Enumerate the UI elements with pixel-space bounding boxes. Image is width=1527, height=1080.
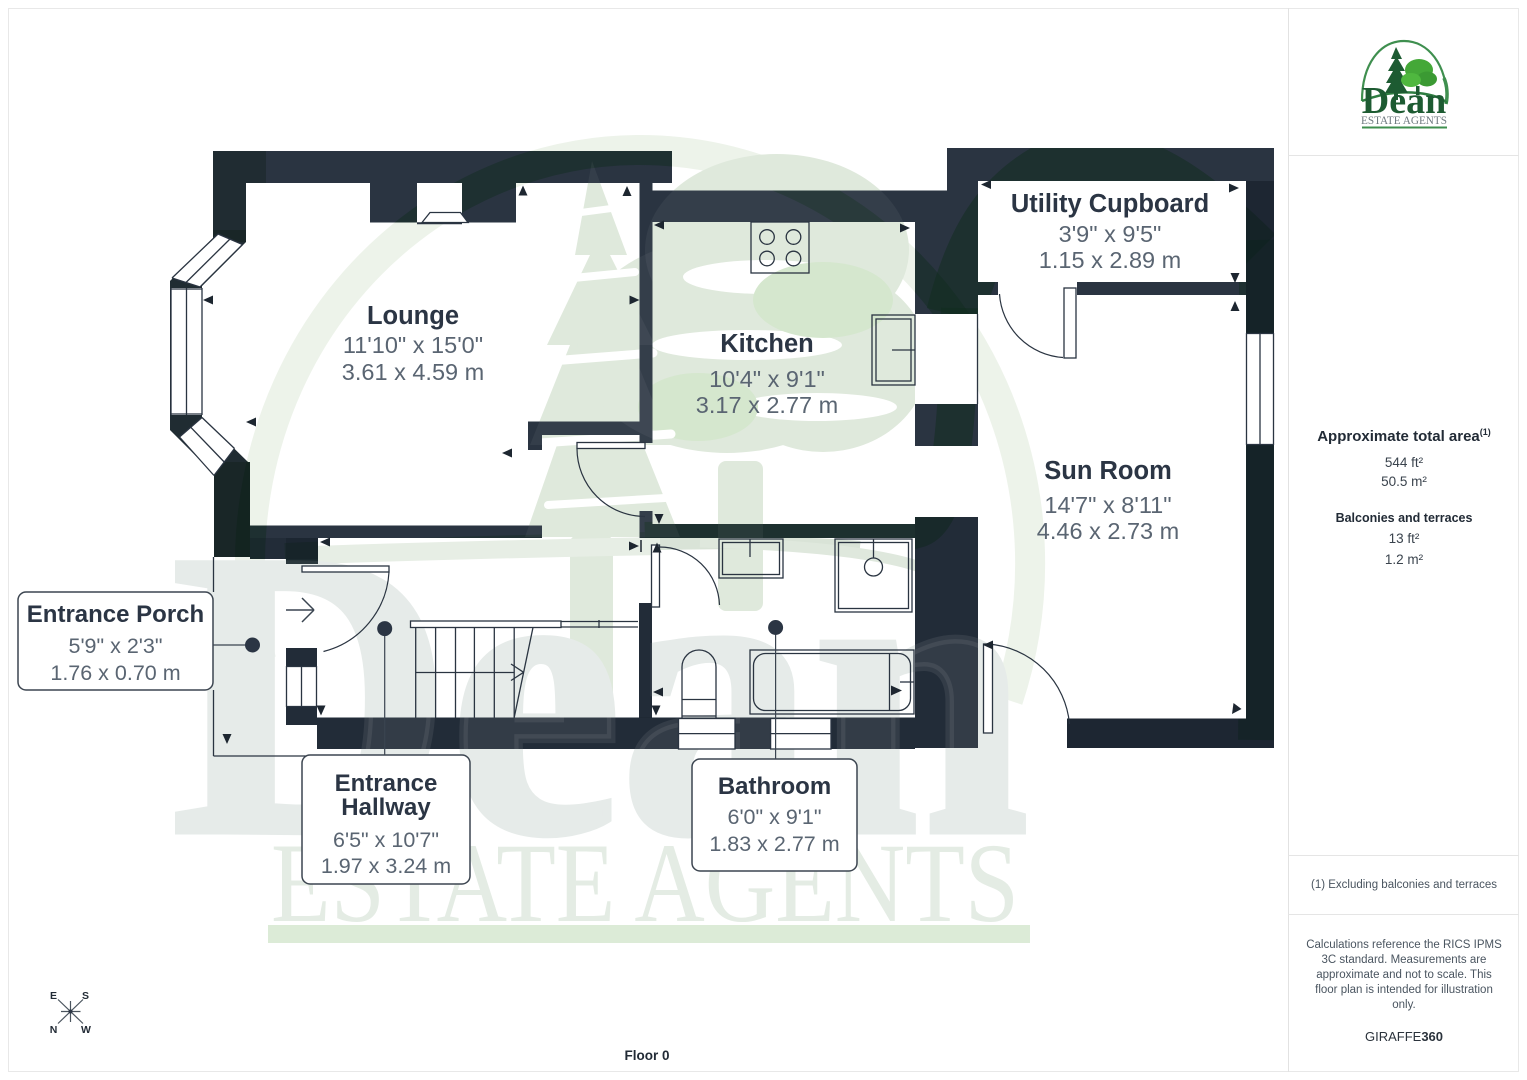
svg-text:3.17 x 2.77 m: 3.17 x 2.77 m [696, 392, 838, 418]
svg-text:GIRAFFE360: GIRAFFE360 [1365, 1029, 1443, 1044]
svg-text:14'7" x 8'11": 14'7" x 8'11" [1044, 492, 1171, 518]
svg-text:S: S [82, 990, 89, 1002]
svg-text:50.5 m²: 50.5 m² [1381, 474, 1427, 489]
svg-text:Entrance Porch: Entrance Porch [27, 601, 204, 628]
svg-text:4.46 x 2.73 m: 4.46 x 2.73 m [1037, 518, 1179, 544]
svg-text:Approximate total area(1): Approximate total area(1) [1317, 427, 1491, 445]
svg-text:6'5" x 10'7": 6'5" x 10'7" [333, 828, 439, 852]
svg-text:E: E [50, 990, 57, 1002]
svg-text:1.2 m²: 1.2 m² [1385, 552, 1424, 567]
svg-text:13 ft²: 13 ft² [1389, 531, 1420, 546]
svg-text:floor plan is intended for ill: floor plan is intended for illustration [1315, 984, 1493, 996]
svg-text:ESTATE AGENTS: ESTATE AGENTS [1361, 115, 1447, 127]
svg-text:approximate and not to scale.: approximate and not to scale. This [1316, 969, 1492, 981]
svg-text:1.97 x 3.24 m: 1.97 x 3.24 m [321, 854, 451, 878]
svg-text:Calculations reference the RIC: Calculations reference the RICS IPMS [1306, 939, 1502, 951]
svg-text:11'10" x 15'0": 11'10" x 15'0" [343, 332, 483, 358]
svg-text:only.: only. [1392, 999, 1415, 1011]
svg-text:1.15 x 2.89 m: 1.15 x 2.89 m [1039, 247, 1181, 273]
svg-text:544 ft²: 544 ft² [1385, 455, 1424, 470]
svg-text:Balconies and terraces: Balconies and terraces [1336, 511, 1473, 525]
svg-text:Bathroom: Bathroom [718, 773, 831, 800]
svg-text:1.76 x 0.70 m: 1.76 x 0.70 m [50, 661, 180, 685]
svg-text:Utility Cupboard: Utility Cupboard [1011, 190, 1209, 218]
svg-text:Sun Room: Sun Room [1044, 457, 1172, 485]
svg-text:1.83 x 2.77 m: 1.83 x 2.77 m [709, 832, 839, 856]
svg-text:Lounge: Lounge [367, 302, 459, 330]
svg-text:3'9" x 9'5": 3'9" x 9'5" [1059, 221, 1162, 247]
svg-text:Floor 0: Floor 0 [624, 1048, 669, 1063]
svg-text:Kitchen: Kitchen [720, 330, 814, 358]
svg-text:10'4" x 9'1": 10'4" x 9'1" [709, 366, 825, 392]
svg-text:3C standard. Measurements are: 3C standard. Measurements are [1322, 954, 1487, 966]
svg-text:6'0" x 9'1": 6'0" x 9'1" [728, 805, 822, 829]
svg-text:N: N [50, 1024, 58, 1036]
svg-text:W: W [81, 1024, 91, 1036]
svg-text:Hallway: Hallway [341, 794, 431, 821]
svg-text:(1) Excluding balconies and te: (1) Excluding balconies and terraces [1311, 879, 1497, 891]
svg-text:5'9" x 2'3": 5'9" x 2'3" [69, 634, 163, 658]
svg-text:Entrance: Entrance [335, 770, 438, 797]
svg-text:3.61 x 4.59 m: 3.61 x 4.59 m [342, 359, 484, 385]
